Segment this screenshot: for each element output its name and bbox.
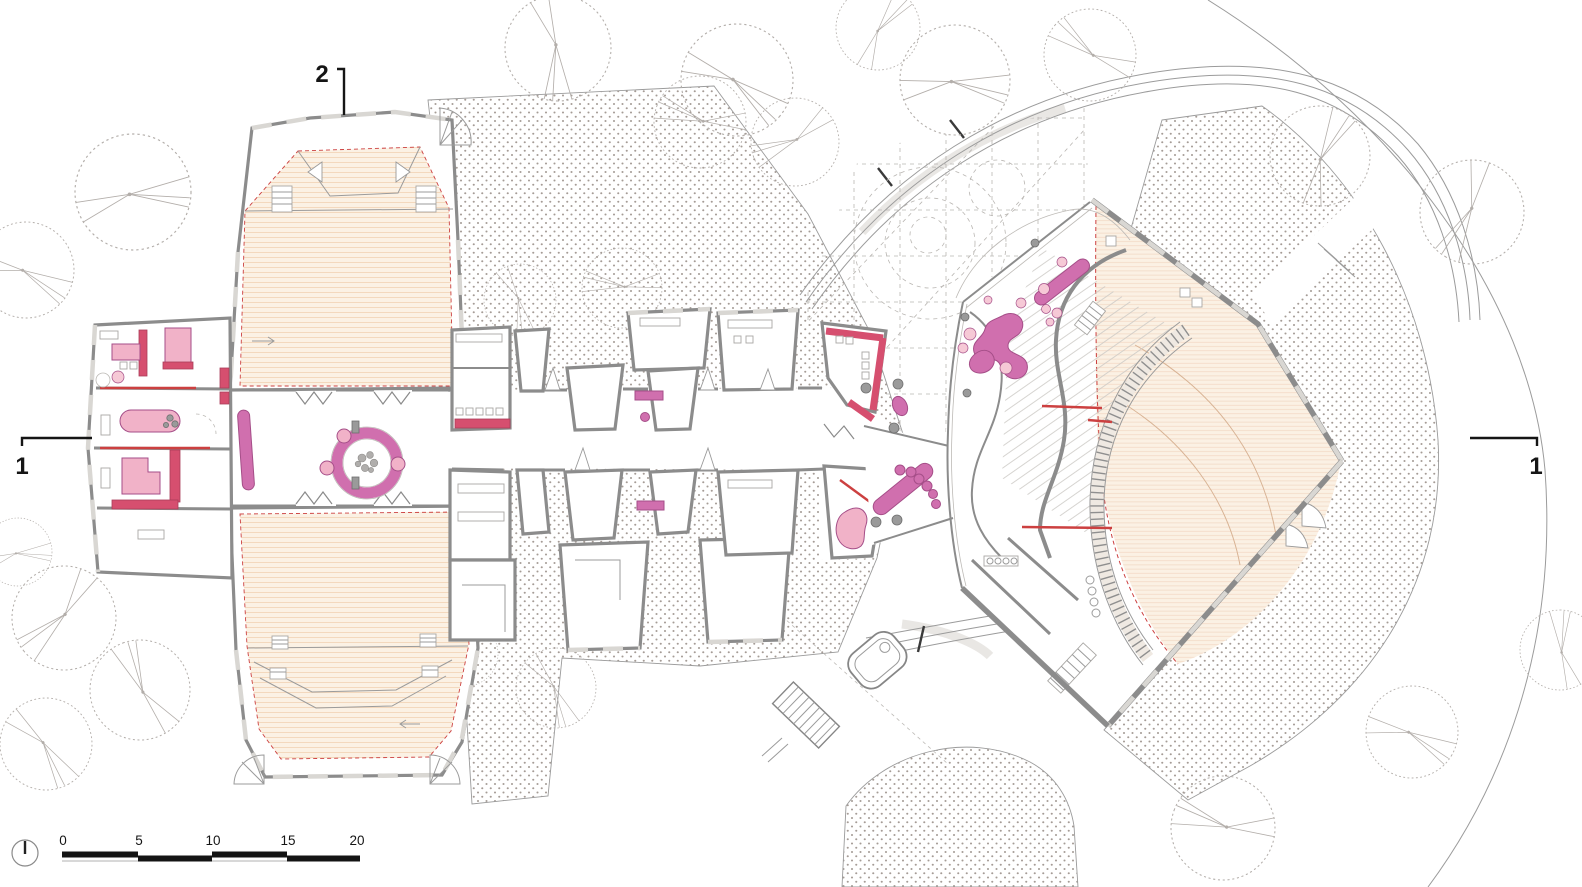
post bbox=[861, 383, 871, 393]
post bbox=[889, 423, 899, 433]
stool bbox=[391, 457, 405, 471]
west-annex bbox=[88, 318, 232, 578]
stool bbox=[337, 429, 351, 443]
hall-north bbox=[230, 112, 464, 390]
section-label: 2 bbox=[315, 61, 328, 88]
classroom-south bbox=[450, 470, 515, 640]
post bbox=[963, 389, 971, 397]
entry-nook bbox=[565, 470, 622, 540]
bench-pink bbox=[635, 391, 663, 400]
central-lobby bbox=[210, 390, 470, 506]
scale-label: 15 bbox=[280, 833, 295, 848]
post bbox=[1031, 239, 1039, 247]
classroom-south bbox=[560, 542, 648, 650]
scale-label: 10 bbox=[205, 833, 220, 848]
hall-north-floor bbox=[240, 147, 453, 386]
post bbox=[871, 517, 881, 527]
section-label: 1 bbox=[1529, 453, 1542, 480]
floor-plan-drawing: 2 1 1 0 5 10 15 20 bbox=[0, 0, 1582, 887]
bench-pink bbox=[637, 501, 664, 510]
scale-label: 0 bbox=[59, 833, 67, 848]
entry-nook bbox=[515, 329, 549, 391]
scale-label: 20 bbox=[349, 833, 364, 848]
hall-south bbox=[230, 506, 478, 777]
post bbox=[893, 379, 903, 389]
scale-label: 5 bbox=[135, 833, 143, 848]
entry-nook bbox=[517, 470, 549, 534]
post bbox=[892, 515, 902, 525]
section-label: 1 bbox=[15, 453, 28, 480]
entry-nook bbox=[567, 365, 623, 430]
post bbox=[961, 313, 969, 321]
coat-bench bbox=[984, 556, 1018, 566]
floor-plan-canvas: 2 1 1 0 5 10 15 20 bbox=[0, 0, 1582, 887]
stool bbox=[320, 461, 334, 475]
classroom bbox=[452, 327, 510, 430]
bench-crimson bbox=[455, 419, 510, 428]
